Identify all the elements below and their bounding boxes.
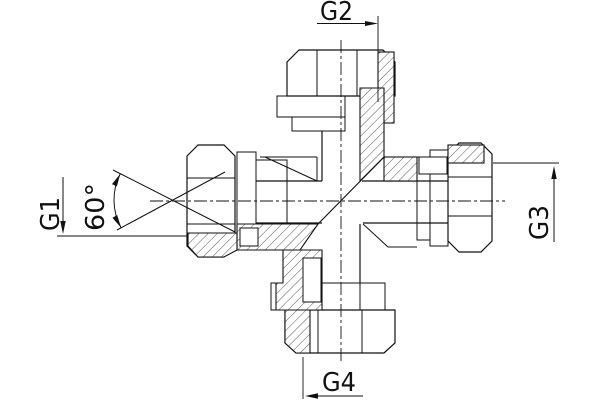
- dimension-label-g4: G4: [322, 368, 356, 398]
- cross-fitting-drawing: 60° G2 G4 G1 G3: [0, 0, 600, 400]
- dimension-label-g2: G2: [320, 0, 353, 27]
- dimension-label-g3: G3: [525, 205, 555, 240]
- technical-drawing-page: 60° G2 G4 G1 G3: [0, 0, 600, 400]
- cone-angle-label: 60°: [81, 183, 111, 231]
